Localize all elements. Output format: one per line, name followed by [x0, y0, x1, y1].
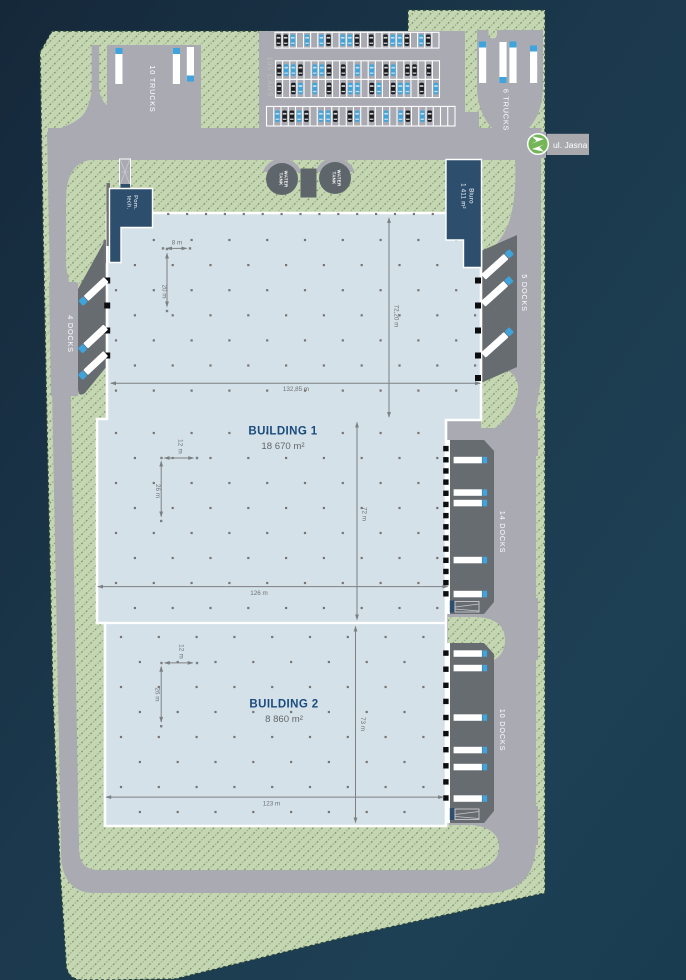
- svg-text:Biuro: Biuro: [468, 188, 474, 204]
- svg-text:73 m: 73 m: [359, 717, 366, 731]
- svg-text:105 CARS: 105 CARS: [266, 57, 275, 98]
- svg-text:4 DOCKS: 4 DOCKS: [66, 315, 75, 353]
- svg-text:TANK: TANK: [332, 172, 337, 185]
- svg-text:BUILDING 2: BUILDING 2: [249, 699, 318, 711]
- svg-text:6 TRUCKS: 6 TRUCKS: [502, 89, 511, 131]
- svg-text:12 m: 12 m: [178, 644, 185, 659]
- svg-text:1 411 m²: 1 411 m²: [460, 183, 466, 209]
- svg-text:TANK: TANK: [279, 173, 284, 186]
- svg-text:12 m: 12 m: [177, 439, 184, 454]
- svg-text:20 m: 20 m: [161, 285, 168, 299]
- svg-text:18 670 m²: 18 670 m²: [261, 441, 305, 452]
- svg-text:BUILDING 1: BUILDING 1: [248, 426, 317, 438]
- svg-text:126 m: 126 m: [250, 590, 268, 597]
- svg-text:26 m: 26 m: [154, 688, 161, 702]
- svg-text:Pom.: Pom.: [132, 195, 138, 210]
- svg-text:8 860 m²: 8 860 m²: [265, 714, 304, 725]
- svg-text:8 m: 8 m: [172, 240, 183, 247]
- svg-text:132,85 m: 132,85 m: [283, 386, 309, 393]
- svg-text:10 TRUCKS: 10 TRUCKS: [148, 65, 157, 112]
- svg-text:5 DOCKS: 5 DOCKS: [520, 274, 529, 312]
- svg-text:14 DOCKS: 14 DOCKS: [498, 511, 507, 554]
- svg-text:tech.: tech.: [126, 195, 132, 209]
- svg-text:72,20 m: 72,20 m: [393, 305, 400, 328]
- svg-text:ul. Jasna: ul. Jasna: [553, 140, 588, 150]
- svg-text:123 m: 123 m: [263, 801, 281, 808]
- svg-text:26 m: 26 m: [154, 484, 161, 498]
- svg-text:72 m: 72 m: [361, 507, 368, 521]
- svg-text:10 DOCKS: 10 DOCKS: [498, 709, 507, 752]
